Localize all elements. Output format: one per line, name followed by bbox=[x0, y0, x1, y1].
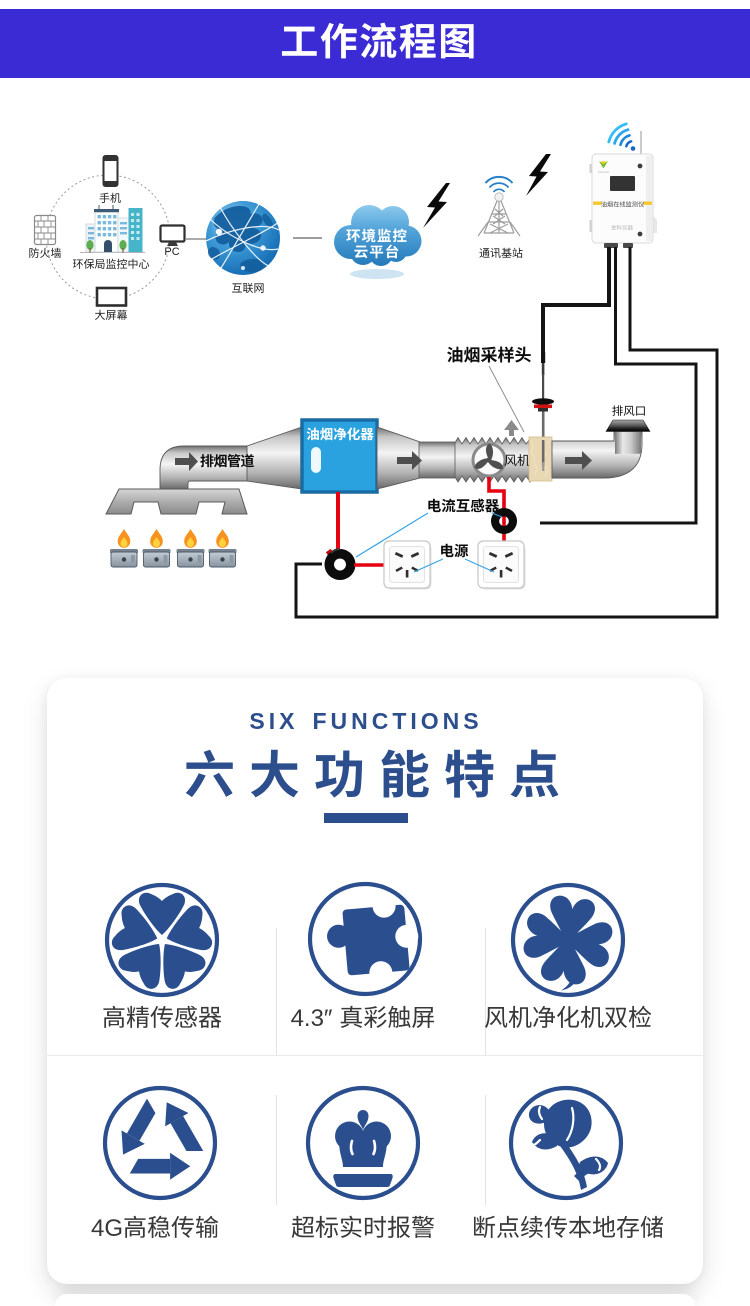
svg-text:油烟净化器: 油烟净化器 bbox=[306, 427, 374, 442]
svg-text:排风口: 排风口 bbox=[612, 405, 647, 418]
svg-text:风机: 风机 bbox=[504, 453, 530, 468]
svg-text:油烟在线监测仪: 油烟在线监测仪 bbox=[601, 201, 644, 209]
svg-text:大屏幕: 大屏幕 bbox=[95, 309, 128, 322]
svg-text:手机: 手机 bbox=[99, 192, 121, 205]
svg-text:电流互感器: 电流互感器 bbox=[427, 498, 500, 515]
svg-text:环境监控: 环境监控 bbox=[346, 228, 408, 245]
svg-text:金科仪器: 金科仪器 bbox=[611, 225, 634, 232]
svg-text:互联网: 互联网 bbox=[232, 282, 265, 295]
svg-text:通讯基站: 通讯基站 bbox=[479, 247, 523, 260]
svg-text:排烟管道: 排烟管道 bbox=[200, 453, 254, 469]
svg-text:防火墙: 防火墙 bbox=[29, 247, 62, 260]
svg-text:云平台: 云平台 bbox=[354, 244, 401, 261]
svg-text:油烟采样头: 油烟采样头 bbox=[447, 346, 532, 365]
svg-text:环保局监控中心: 环保局监控中心 bbox=[73, 258, 150, 271]
svg-text:电源: 电源 bbox=[440, 543, 469, 560]
svg-text:PC: PC bbox=[164, 246, 179, 258]
